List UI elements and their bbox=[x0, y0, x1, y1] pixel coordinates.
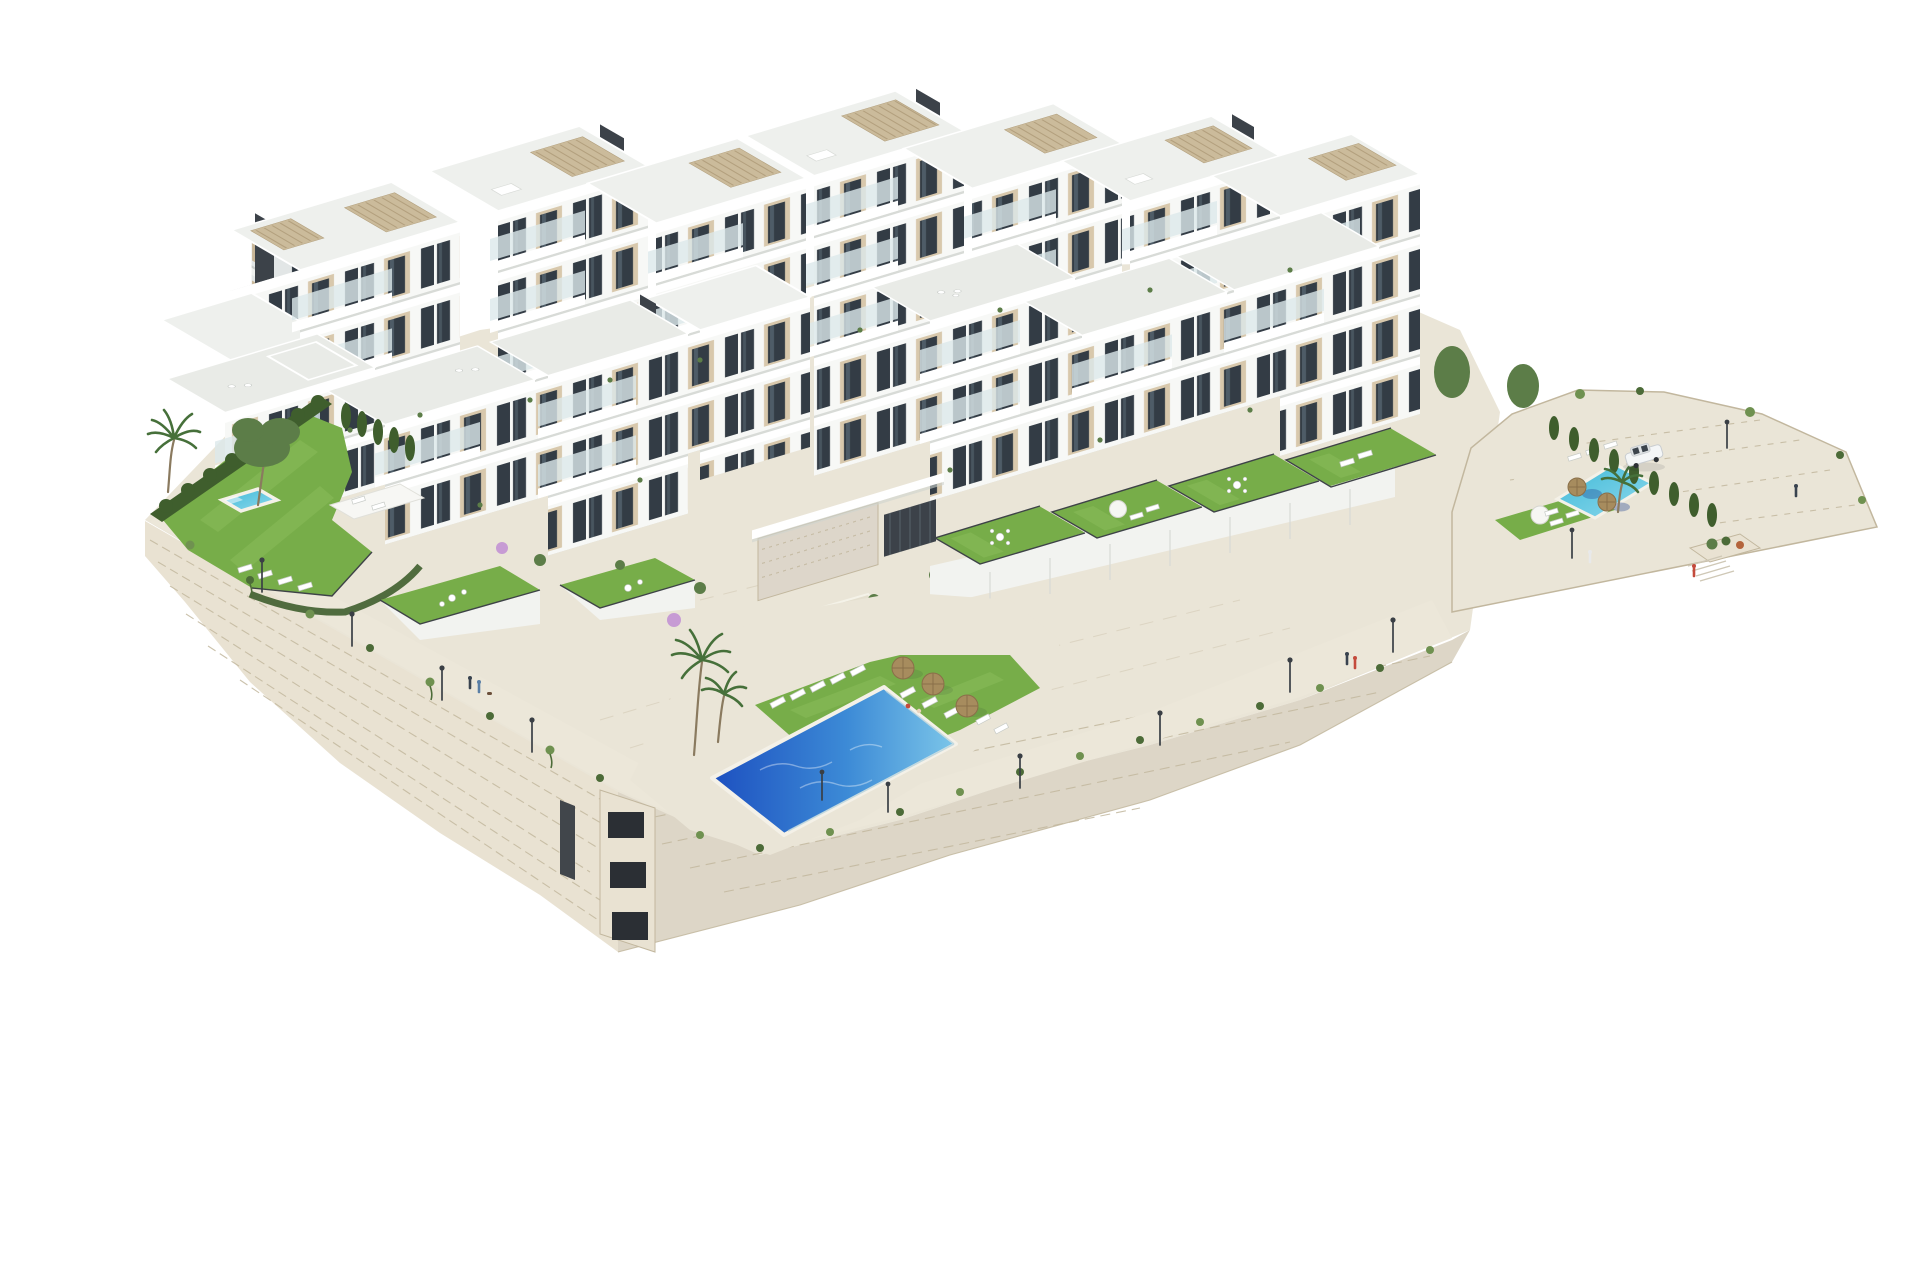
swimmer-1 bbox=[906, 704, 911, 709]
bloom-shrub-2 bbox=[667, 613, 681, 627]
architectural-render-canvas bbox=[0, 0, 1920, 1280]
bloom-shrub-1 bbox=[496, 542, 508, 554]
swimmer-2 bbox=[917, 709, 921, 713]
dog bbox=[487, 692, 492, 695]
corner-stairwell bbox=[560, 790, 655, 952]
residential-complex-render bbox=[0, 0, 1920, 1280]
